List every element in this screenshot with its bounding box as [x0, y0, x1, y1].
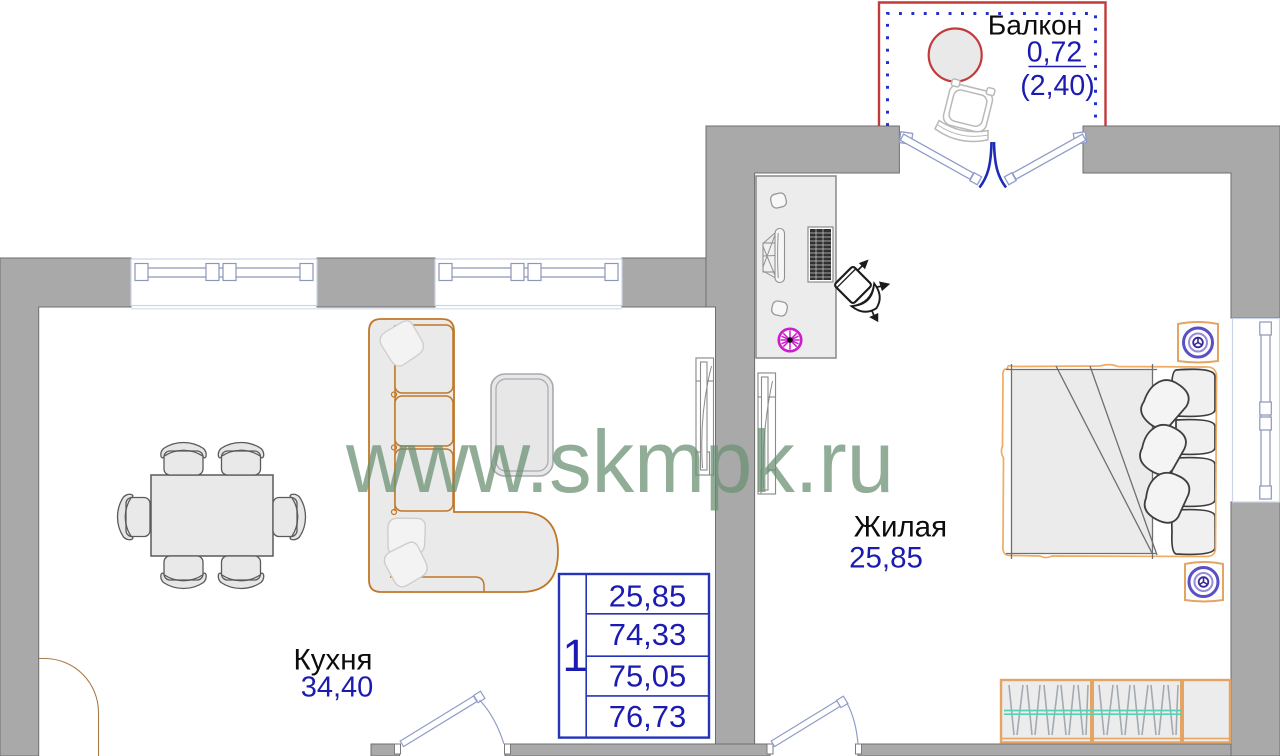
svg-text:0,72: 0,72: [1027, 37, 1082, 69]
svg-text:(2,40): (2,40): [1020, 70, 1094, 102]
svg-text:76,73: 76,73: [609, 699, 687, 734]
svg-text:34,40: 34,40: [301, 672, 374, 704]
svg-text:Жилая: Жилая: [854, 511, 947, 544]
svg-text:25,85: 25,85: [849, 542, 923, 575]
svg-text:1: 1: [562, 630, 587, 681]
svg-text:74,33: 74,33: [609, 617, 687, 652]
svg-text:www.skmpk.ru: www.skmpk.ru: [345, 412, 894, 511]
svg-text:75,05: 75,05: [609, 658, 687, 693]
svg-text:25,85: 25,85: [609, 579, 687, 614]
